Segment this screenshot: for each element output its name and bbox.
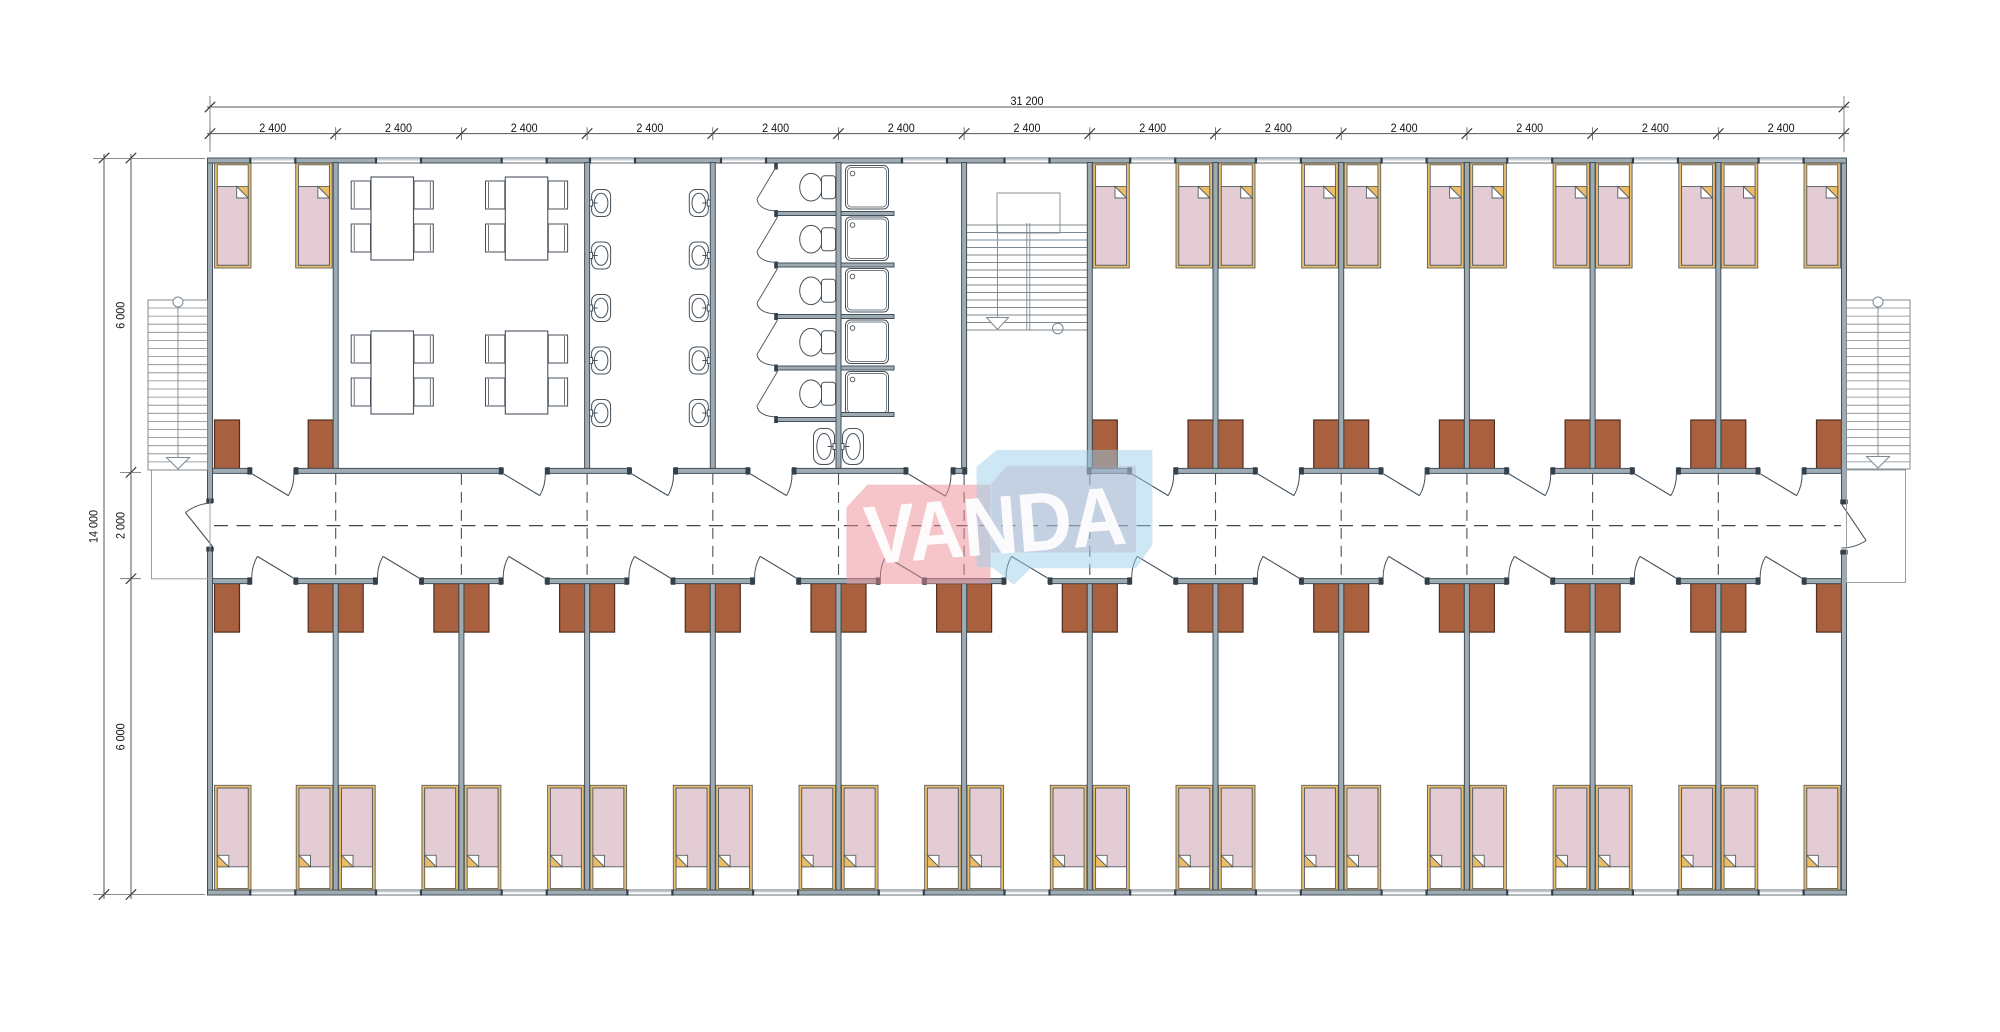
svg-text:2 400: 2 400	[1391, 121, 1418, 135]
svg-text:2 400: 2 400	[511, 121, 538, 135]
svg-text:2 400: 2 400	[1139, 121, 1166, 135]
svg-text:6 000: 6 000	[114, 302, 128, 329]
svg-text:31 200: 31 200	[1011, 94, 1044, 108]
svg-text:2 400: 2 400	[259, 121, 286, 135]
svg-text:2 400: 2 400	[385, 121, 412, 135]
svg-text:2 400: 2 400	[1265, 121, 1292, 135]
svg-text:2 400: 2 400	[636, 121, 663, 135]
svg-text:2 400: 2 400	[762, 121, 789, 135]
svg-text:2 400: 2 400	[1642, 121, 1669, 135]
svg-text:14 000: 14 000	[87, 510, 101, 543]
svg-text:2 400: 2 400	[888, 121, 915, 135]
svg-text:2 400: 2 400	[1516, 121, 1543, 135]
svg-text:2 400: 2 400	[1014, 121, 1041, 135]
svg-text:2 400: 2 400	[1768, 121, 1795, 135]
svg-text:6 000: 6 000	[114, 723, 128, 750]
svg-text:2 000: 2 000	[114, 512, 128, 539]
